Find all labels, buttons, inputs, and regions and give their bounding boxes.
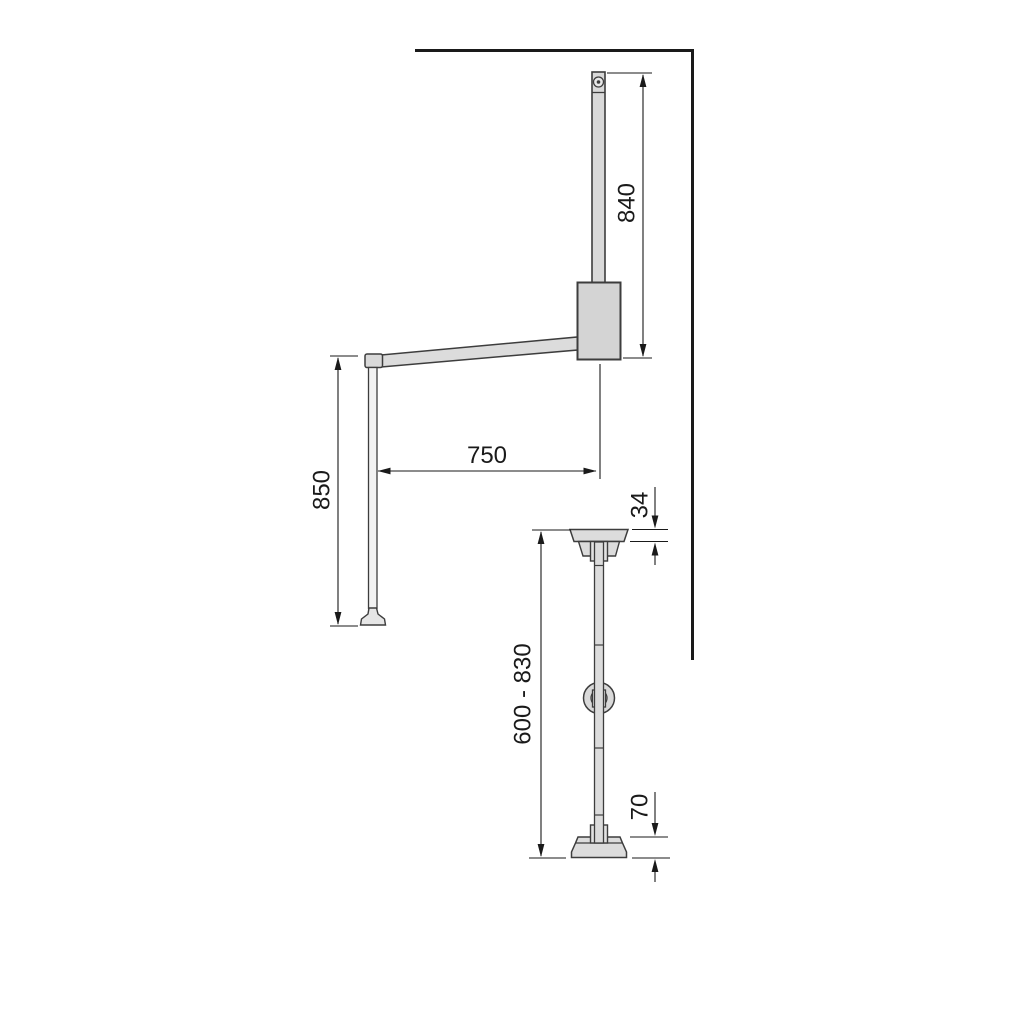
handle-pole <box>369 368 378 609</box>
dimension-label-840: 840 <box>613 183 640 223</box>
arrow-up-icon <box>640 74 647 87</box>
telescopic-rod <box>595 542 604 843</box>
dimension-70: 70 <box>626 792 670 882</box>
technical-drawing-page: 840 750 850 34 600 - 830 <box>0 0 1024 1024</box>
elbow-joint <box>365 354 383 368</box>
drawing-canvas: 840 750 850 34 600 - 830 <box>0 0 1024 1024</box>
top-cap-flange <box>570 530 628 542</box>
dimension-label-600-830: 600 - 830 <box>509 643 536 744</box>
dimension-850: 850 <box>308 356 358 626</box>
screw-center-dot <box>597 80 601 84</box>
pole-foot <box>361 608 386 625</box>
lift-body <box>578 283 621 360</box>
arrow-up-icon <box>652 859 659 872</box>
arrow-down-icon <box>335 612 342 625</box>
dimension-34: 34 <box>626 487 668 565</box>
dimension-label-34: 34 <box>626 492 653 519</box>
arrow-down-icon <box>652 823 659 836</box>
arrow-down-icon <box>538 844 545 857</box>
dimension-600-830: 600 - 830 <box>509 530 571 858</box>
arrow-up-icon <box>652 543 659 556</box>
swing-arm <box>381 337 578 367</box>
dimension-750: 750 <box>378 364 601 479</box>
arrow-up-icon <box>538 531 545 544</box>
dimension-label-850: 850 <box>308 470 335 510</box>
lift-front-view <box>570 530 628 858</box>
arrow-right-icon <box>584 468 597 475</box>
mounting-bar <box>592 72 605 283</box>
arrow-left-icon <box>378 468 391 475</box>
arrow-up-icon <box>335 357 342 370</box>
arrow-down-icon <box>640 344 647 357</box>
dimension-label-750: 750 <box>467 442 507 469</box>
dimension-label-70: 70 <box>626 794 653 821</box>
